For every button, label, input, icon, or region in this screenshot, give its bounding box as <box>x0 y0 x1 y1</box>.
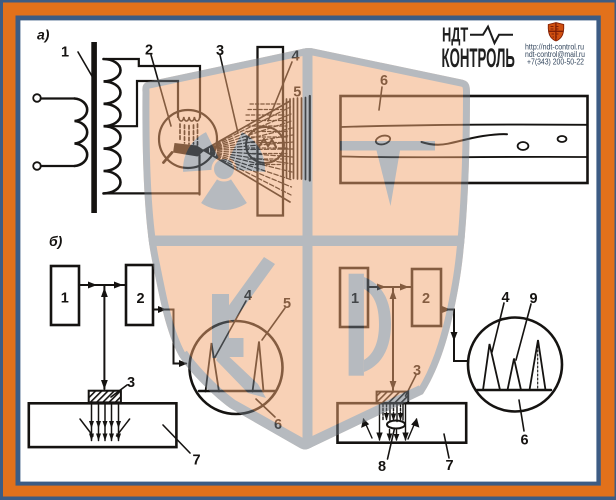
svg-text:а): а) <box>37 27 50 43</box>
svg-text:8: 8 <box>378 459 386 475</box>
svg-text:КОНТРОЛЬ: КОНТРОЛЬ <box>442 43 515 73</box>
svg-text:7: 7 <box>445 458 453 474</box>
svg-text:3: 3 <box>216 43 224 59</box>
svg-text:2: 2 <box>136 291 144 307</box>
svg-text:6: 6 <box>520 433 528 449</box>
svg-text:+7(343) 200-50-22: +7(343) 200-50-22 <box>527 58 584 67</box>
svg-text:2: 2 <box>145 43 153 59</box>
svg-text:3: 3 <box>127 375 135 391</box>
svg-text:9: 9 <box>529 291 537 307</box>
svg-text:7: 7 <box>192 453 200 469</box>
svg-text:1: 1 <box>61 45 69 61</box>
svg-text:б): б) <box>49 233 63 249</box>
svg-text:1: 1 <box>61 291 69 307</box>
svg-text:4: 4 <box>501 290 509 306</box>
